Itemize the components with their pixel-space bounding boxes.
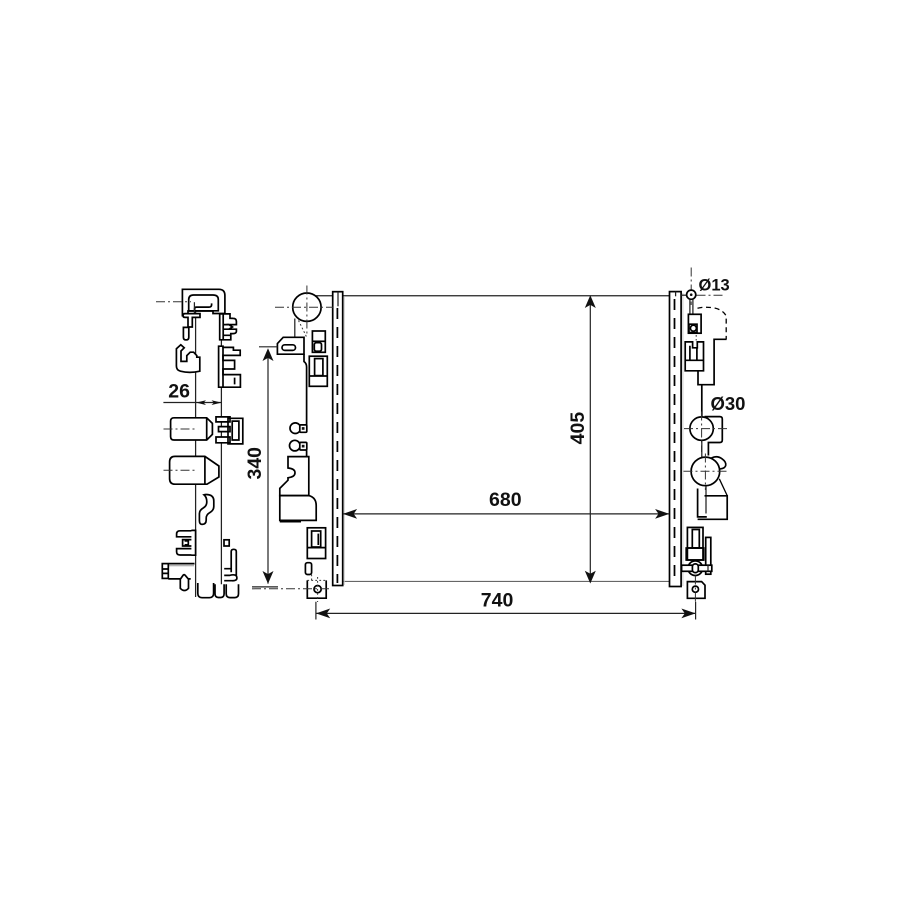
svg-text:Ø30: Ø30 xyxy=(711,393,746,414)
svg-text:26: 26 xyxy=(168,380,190,402)
svg-text:740: 740 xyxy=(481,590,514,612)
svg-text:405: 405 xyxy=(567,412,589,445)
svg-text:340: 340 xyxy=(244,447,266,480)
svg-text:Ø13: Ø13 xyxy=(699,277,730,295)
svg-text:680: 680 xyxy=(489,489,522,511)
